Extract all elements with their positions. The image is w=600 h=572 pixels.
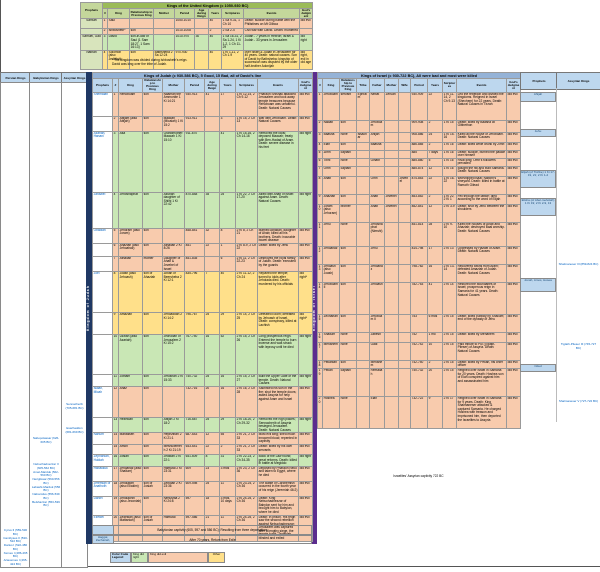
king-link-entry[interactable]: Nabopolassar (626-605 BC) — [30, 437, 62, 445]
cell-jdg: did evil — [299, 228, 313, 243]
cell-scr: 2 Ki 15 — [443, 342, 457, 360]
cell-wife — [399, 204, 411, 222]
judah-header-period: Period — [185, 79, 205, 93]
cell-rel: son — [143, 454, 163, 466]
cell-rel: son — [340, 282, 357, 314]
cell-period: 732-722 — [411, 397, 428, 429]
cell-events: Judah - 7 years in Hebron; Israel & Juda… — [244, 35, 300, 50]
top-header-rel: Relationship to Previous King — [130, 9, 154, 19]
cell-scr: 2 Ki 22-23, 2 Ch 34-35 — [236, 454, 258, 466]
legend-king-did-right: King did right — [131, 552, 148, 563]
cell-scr: 2 Ki 14, 2 Ch 25 — [236, 313, 258, 335]
cell-rel: son — [143, 243, 163, 256]
cell-rel: son — [143, 417, 163, 432]
cell-scr: 2 Ki 3-9 — [443, 204, 457, 222]
cell-wife — [399, 246, 411, 264]
cell-rel: none — [340, 222, 357, 246]
cell-scr: 2 Ki 15 — [443, 369, 457, 397]
cell-prophet[interactable]: Jeremiah of Anathoth — [93, 481, 113, 496]
prophet-cell[interactable]: Jonah, Amos, Hosea — [520, 278, 556, 292]
king-link-entry[interactable]: Esarhaddon (681-669 BC) — [62, 427, 87, 435]
cell-scr: 2 Ki 11, 2 Ch 22-23 — [236, 256, 258, 271]
table-row: Shemaiah1RehoboamsonNaamah the Ammonite … — [93, 92, 313, 116]
prophet-cell[interactable]: Jehu — [520, 129, 556, 137]
table-row: 7Omricaptain885-874121 Ki 16Bought the h… — [318, 166, 521, 176]
cell-period: 782-753 — [411, 282, 428, 314]
cell-scr: 1 Ki 16 — [443, 142, 457, 150]
cell-age — [205, 116, 220, 131]
table-row: Daniel19Jehoiachin (also Jeconiah)sonNeh… — [93, 496, 313, 515]
footnote: * The kingdom was divided during Ishbosh… — [112, 58, 312, 66]
cell-jdg: did evil — [507, 132, 521, 142]
cell-scr: 1 Ki 12-14, 2 Ch 9-12 — [236, 92, 258, 116]
cell-tribe — [357, 194, 370, 204]
cell-scr: 1 Ki 15-16 — [443, 132, 457, 142]
cell-jdg: did right — [299, 192, 313, 228]
cell-king: Asa — [119, 131, 143, 192]
cell-mother — [385, 166, 399, 176]
cell-father: Jeroboam II — [370, 314, 385, 332]
post-exile-prophets-cell[interactable]: Haggai, Zechariah, Malachi — [93, 536, 114, 543]
cell-jdg: did evil — [507, 150, 521, 158]
cell-king: Amaziah — [119, 313, 143, 335]
cell-mother: Meshullemeth 2 Ki 21:19 — [163, 444, 185, 454]
cell-jdg: did right — [299, 335, 313, 375]
cell-period: 609 — [185, 466, 205, 481]
prophet-cell[interactable]: Oded — [520, 364, 556, 372]
cell-tribe: Issachar — [357, 132, 370, 142]
babylonian-kings-column: Nabopolassar (626-605 BC)Nebuchadnezzar … — [29, 82, 63, 568]
cell-king: Jeroboam — [323, 92, 340, 120]
cell-age: 41 — [205, 92, 220, 116]
cell-period: 767-740 — [185, 335, 205, 375]
cell-mother: Zibiah of Beersheba 2 Ki 12:1 — [163, 272, 185, 313]
cell-king: Jotham — [119, 375, 143, 387]
cell-wife — [399, 264, 411, 282]
cell-period: 597 — [185, 496, 205, 515]
cell-wife — [399, 194, 411, 204]
cell-tribe — [357, 264, 370, 282]
cell-events: Death: killed by Pekah, his chief office… — [457, 360, 507, 368]
cell-king: Pekah — [323, 369, 340, 397]
cell-mother — [385, 397, 399, 429]
cell-rel: son — [143, 466, 163, 481]
cell-yrs: 22 — [428, 176, 443, 194]
cell-jdg: did evil — [507, 92, 521, 120]
cell-wife — [399, 342, 411, 360]
cell-jdg: did right — [299, 454, 313, 466]
cell-yrs: 5 — [428, 158, 443, 166]
cell-prophet[interactable]: Samuel, Gad — [81, 35, 103, 50]
color-code-legend: Color Code Legend: King did right King d… — [110, 552, 225, 563]
king-link-entry[interactable]: Shalmaneser III (859-824 BC) — [557, 263, 600, 267]
cell-mother: Jecholiah of Jerusalem 2 Ki 15:2 — [163, 335, 185, 375]
cell-period: 740-732 — [185, 375, 205, 387]
cell-king: Joash (also Jehoash) — [119, 272, 143, 313]
cell-yrs: 1 — [220, 243, 236, 256]
israel-kings-table: Kings of Israel (c 930-722 BC), All were… — [317, 72, 521, 429]
cell-rel: son — [143, 313, 163, 335]
cell-events: Rival king; Omri's followers prevailed — [457, 158, 507, 166]
cell-yrs: 29 — [220, 417, 236, 432]
cell-rel: son — [143, 433, 163, 445]
table-row: Azariah, Hanani3AsasonGrandmother: Maaca… — [93, 131, 313, 192]
cell-prophet[interactable]: Nahum — [93, 433, 113, 445]
cell-king: Jehoiakim (also Eliakim) — [119, 481, 143, 496]
israel-header-years: Years — [428, 79, 443, 93]
table-row: 11JothamsonJerushah 2 Ki 15:33740-732251… — [93, 375, 313, 387]
cell-period: 909-908 — [411, 120, 428, 132]
cell-prophet — [93, 417, 113, 432]
israel-header-scriptures: Scriptures — [443, 79, 457, 93]
cell-period: 874-853 — [411, 176, 428, 194]
cell-father: Jehoshaphat (Nimshi) — [370, 222, 385, 246]
cell-mother — [385, 314, 399, 332]
cell-mother — [154, 35, 175, 50]
cell-rel: son of Josiah — [143, 481, 163, 496]
cell-jdg: did evil — [507, 264, 521, 282]
cell-tribe — [357, 369, 370, 397]
persian-kings-column: Cyrus II (559-530 BC)Cambyses II (530-52… — [0, 82, 31, 568]
cell-age: 32 — [205, 228, 220, 243]
cell-events: Worshipped Baal; Naboth's vineyard. Deat… — [457, 176, 507, 194]
cell-period: 841-835 — [185, 256, 205, 271]
cell-king: Jehoash (also Joash) — [323, 264, 340, 282]
cell-jdg: did evil — [507, 222, 521, 246]
cell-scr: 2 Ki 17 — [443, 397, 457, 429]
table-row: 2NadabsonJeroboam909-90821 Ki 15Death: k… — [318, 120, 521, 132]
cell-yrs: 6 mos — [428, 314, 443, 332]
table-row: Jahaziel4JehoshaphatsonAzubah daughter o… — [93, 192, 313, 228]
cell-period: 716-687 — [185, 417, 205, 432]
cell-events: Death: suicide during battle with the Ph… — [244, 19, 300, 29]
cell-king: Hoshea — [323, 397, 340, 429]
cell-prophet[interactable]: Daniel — [93, 496, 113, 515]
cell-prophet — [93, 116, 113, 131]
cell-yrs: 28 — [428, 222, 443, 246]
cell-yrs: 2 — [428, 360, 443, 368]
cell-father: Ahab — [370, 194, 385, 204]
king-link-entry[interactable]: Sennacherib (705-681 BC) — [62, 403, 87, 411]
cell-age: 7 — [205, 272, 220, 313]
cell-scr: 2 Ki 15 — [443, 360, 457, 368]
cell-jdg: did evil — [299, 466, 313, 481]
cell-mother — [385, 132, 399, 142]
cell-father: Remaliah — [370, 369, 385, 397]
cell-age: 35 — [205, 192, 220, 228]
judah-header-events: Events — [258, 79, 299, 93]
cell-events: Death: suicide, burned the palace over h… — [457, 150, 507, 158]
cell-rel: son — [340, 264, 357, 282]
cell-king: Omri — [323, 166, 340, 176]
cell-wife — [399, 120, 411, 132]
top-header-prophets: Prophets — [81, 3, 103, 19]
table-row: 14Jeroboam IIsonJehoash782-753412 Ki 14R… — [318, 282, 521, 314]
table-row: 4ElahsonBaasha886-88521 Ki 16Death: kill… — [318, 142, 521, 150]
cell-mother: Naamah the Ammonite 1 Ki 14:21 — [163, 92, 185, 116]
cell-king: Menahem — [323, 342, 340, 360]
israel-header-rel: Relationship to Previous King — [340, 79, 357, 93]
cell-tribe — [357, 342, 370, 360]
cell-king: Jehoahaz — [323, 246, 340, 264]
cell-scr: 2 Ki 15 — [443, 314, 457, 332]
cell-events: Death: killed by his own servants — [258, 444, 299, 454]
top-header-years: Years — [209, 9, 222, 19]
cell-events: Oppressed by Hazael of Aram. Death: Natu… — [457, 246, 507, 264]
prophet-cell[interactable]: Elisha (of Abel-meholah) 1 Ki 19; 2 Ki 2… — [520, 198, 556, 216]
cell-prophet[interactable]: Obadiah — [93, 228, 113, 243]
cell-mother: Hephzibah 2 Ki 21:1 — [163, 433, 185, 445]
cell-king: Uzziah (also Azariah) — [119, 335, 143, 375]
cell-jdg: did evil — [507, 166, 521, 176]
cell-rel: none — [340, 342, 357, 360]
top-header-mother: Mother — [154, 9, 175, 19]
cell-king: Jehoahaz (also Shallum) — [119, 466, 143, 481]
israel-header-father: Father — [370, 79, 385, 93]
cell-father: Ahab — [370, 204, 385, 222]
cell-father — [370, 166, 385, 176]
cell-age: 22 — [205, 243, 220, 256]
cell-king: Jehoshaphat — [119, 192, 143, 228]
cell-jdg: did right — [300, 35, 313, 50]
cell-yrs: 40 — [220, 272, 236, 313]
cell-period: 753 — [411, 314, 428, 332]
cell-scr: 1 Sa 9-31, 1 Ch 10 — [222, 19, 244, 29]
cell-age: 22 — [205, 444, 220, 454]
king-link-entry[interactable]: Tiglath-Pileser III (745-727 BC) — [557, 343, 600, 351]
cell-mother: Abijah 2 Ki 18:2 — [163, 417, 185, 432]
table-row: Zephaniah, Huldah16JosiahsonJedidah 2 Ki… — [93, 454, 313, 466]
table-row: Samuel, Gad3Davidson-in-law of Saul (1 S… — [81, 35, 313, 50]
cell-scr: 2 Ki 15, 2 Ch 27 — [236, 375, 258, 387]
cell-wife — [399, 369, 411, 397]
cell-events: Removed the high places; Sennacherib of … — [258, 417, 299, 432]
table-row: 13HezekiahsonAbijah 2 Ki 18:2716-6872529… — [93, 417, 313, 432]
kings-timeline-sheet: Prophets Kings of the United Kingdom (c … — [0, 0, 600, 572]
cell-mother: Hamutal 2 Ki 23:31 — [163, 466, 185, 481]
cell-scr: 1 Ki 16-22 — [443, 176, 457, 194]
cell-yrs: 16 — [220, 375, 236, 387]
cell-mother: Azubah daughter of Shilhi 1 Ki 22:42 — [163, 192, 185, 228]
cell-period: 835-796 — [185, 272, 205, 313]
cell-scr: 1 Ki 15, 2 Ch 13 — [236, 116, 258, 131]
cell-yrs: 16 — [428, 264, 443, 282]
cell-events: Built the Upper Gate of the temple. Deat… — [258, 375, 299, 387]
cell-scr: 2 Ki 8-9, 2 Ch 22 — [236, 243, 258, 256]
cell-yrs: 41 — [428, 282, 443, 314]
cell-mother: Grandmother: Maacah 1 Ki 15:10 — [163, 131, 185, 192]
cell-scr: 2 Ki 11-12, 2 Ch 24 — [236, 272, 258, 313]
cell-jdg: did evil — [507, 194, 521, 204]
cell-mother — [385, 246, 399, 264]
cell-prophet[interactable]: Samuel — [81, 19, 103, 29]
table-row: 15ZechariahsonJeroboam II7536 mos2 Ki 15… — [318, 314, 521, 332]
cell-rel: captain — [340, 369, 357, 397]
cell-rel: mother — [143, 256, 163, 271]
cell-father: Ahijah — [370, 132, 385, 142]
cell-period: 609-598 — [185, 481, 205, 496]
cell-rel: son — [143, 335, 163, 375]
cell-rel: son — [340, 176, 357, 194]
cell-prophet[interactable]: Shemaiah — [93, 92, 113, 116]
cell-tribe — [357, 166, 370, 176]
cell-mother — [163, 228, 185, 243]
cell-wife — [399, 158, 411, 166]
cell-period: 1050-1010 — [175, 19, 195, 29]
cell-prophet[interactable]: Habakkuk — [93, 466, 113, 481]
cell-prophet[interactable]: Nathan — [81, 50, 103, 69]
cell-scr: 2 Ki 8, 2 Ch 21 — [236, 228, 258, 243]
cell-period: 885 — [411, 150, 428, 158]
cell-king: Shallum — [323, 332, 340, 342]
table-row: 12JehoahazsonJehu814-798172 Ki 13Oppress… — [318, 246, 521, 264]
cell-scr: 2 Ki 23, 2 Ch 36 — [236, 466, 258, 481]
cell-events: Long prosperous reign. Entered the templ… — [258, 335, 299, 375]
cell-yrs: 9 — [428, 397, 443, 429]
table-row: 18PekahiahsonMenahem742-74022 Ki 15Death… — [318, 360, 521, 368]
table-row: Nahum14ManassehsonHephzibah 2 Ki 21:1687… — [93, 433, 313, 445]
cell-period: 908-886 — [411, 132, 428, 142]
cell-king: Jehu — [323, 222, 340, 246]
cell-mother: Nehushta 2 Ki 24:8 — [163, 496, 185, 515]
cell-yrs: 12 — [428, 166, 443, 176]
cell-events: Death: King Nebuchadnezzar of Babylon se… — [258, 496, 299, 515]
king-link-entry[interactable]: Shalmaneser V (727-722 BC) — [557, 400, 600, 404]
cell-prophet[interactable]: Isaiah, Micah — [93, 386, 113, 417]
israel-header-tribe: Tribe — [357, 79, 370, 93]
cell-period: 930-913 — [185, 92, 205, 116]
cell-mother — [163, 386, 185, 417]
cell-jdg: did evil — [507, 332, 521, 342]
cell-king: Abijam (also Abijah) — [119, 116, 143, 131]
cell-age: 23 — [205, 466, 220, 481]
table-row: 1JeroboamservantEphraimNebatZeruah930-90… — [318, 92, 521, 120]
cell-events: War with Jeroboam. Death: Natural Causes — [258, 116, 299, 131]
cell-rel: son — [143, 131, 163, 192]
king-link-entry[interactable]: Cyrus II (559-530 BC)Cambyses II (530-52… — [1, 529, 30, 567]
band-prophet-cell — [93, 526, 114, 534]
cell-scr: 2 Ki 9-10 — [443, 222, 457, 246]
cell-prophet[interactable]: Jahaziel — [93, 192, 113, 228]
cell-events: Death: killed while drunk by Zimri — [457, 142, 507, 150]
cell-jdg: did evil — [299, 481, 313, 496]
cell-jdg: did evil — [507, 204, 521, 222]
israel-prophets-column: AhijahJehuElijah (of Tishbe) 1 Ki 17-19,… — [520, 88, 556, 422]
cell-prophet[interactable]: Azariah, Hanani — [93, 131, 113, 192]
cell-events: Death: killed by Baasha at Gibbethon — [457, 120, 507, 132]
cell-rel: son — [340, 120, 357, 132]
cell-mother: Zebidah 2 Ki 23:36 — [163, 481, 185, 496]
return-from-exile-text: After 70 years, Return from Exile — [114, 538, 311, 542]
cell-mother: Athaliah 2 Ki 8:26 — [163, 243, 185, 256]
cell-yrs: 8 — [220, 228, 236, 243]
judah-kings-table: Kings of Judah (c 930-586 BC), 5 Good, 1… — [92, 72, 313, 542]
table-row: 3BaashanoneIssacharAhijah908-886241 Ki 1… — [318, 132, 521, 142]
cell-king: Zimri — [323, 150, 340, 158]
cell-mother — [154, 19, 175, 29]
prophet-cell[interactable]: Elijah (of Tishbe) 1 Ki 17-19, 21; 2 Ki … — [520, 170, 556, 188]
cell-prophet — [93, 313, 113, 335]
israel-header-events: Events — [457, 79, 507, 93]
prophet-cell[interactable]: Ahijah — [520, 92, 556, 102]
cell-scr: 1 Ki 15-16, 2 Ch 14-16 — [236, 131, 258, 192]
cell-jdg: did evil — [507, 158, 521, 166]
cell-king: Josiah — [119, 454, 143, 466]
cell-yrs: 52 — [220, 335, 236, 375]
cell-events: Pharaoh Shishak attacked Jerusalem and t… — [258, 92, 299, 116]
cell-rel: son — [143, 496, 163, 515]
cell-events: Removed the idols; deposed Maacah; treat… — [258, 131, 299, 192]
judah-header-years: Years — [220, 79, 236, 93]
cell-events: Reigned over Israel in Samaria for 9 yea… — [457, 397, 507, 429]
cell-events: Destroyed the royal family of Judah. Dea… — [258, 256, 299, 271]
cell-rel: son of Ahaziah — [143, 272, 163, 313]
table-row: 11JehunoneJehoshaphat (Nimshi)841-814282… — [318, 222, 521, 246]
cell-mother — [385, 150, 399, 158]
legend-label: Color Code Legend: — [110, 552, 131, 563]
cell-events: Married Athaliah, daughter of Ahab; kill… — [258, 228, 299, 243]
cell-mother — [385, 332, 399, 342]
cell-yrs: 31 — [220, 454, 236, 466]
cell-rel: son — [340, 194, 357, 204]
table-row: 6Ahaziah (also Jehoahaz)sonAthaliah 2 Ki… — [93, 243, 313, 256]
cell-mother — [385, 222, 399, 246]
cell-period: 841-814 — [411, 222, 428, 246]
top-header-king: King — [108, 9, 130, 19]
cell-king: Baasha — [323, 132, 340, 142]
cell-rel: son — [143, 444, 163, 454]
top-header-period: Period — [175, 9, 195, 19]
cell-jdg: did evil — [507, 314, 521, 332]
cell-yrs: 3 — [220, 116, 236, 131]
cell-events: Paid tribute to Pul (Tiglath-Pileser) of… — [457, 342, 507, 360]
cell-events: Defeated Edom; defeated by Jehoash of Is… — [258, 313, 299, 335]
table-row: Jeremiah of Anathoth18Jehoiakim (also El… — [93, 481, 313, 496]
cell-jdg: did right — [299, 375, 313, 387]
cell-jdg: did right — [299, 131, 313, 192]
cell-tribe — [357, 314, 370, 332]
cell-wife — [399, 397, 411, 429]
cell-yrs: 1 mo — [428, 332, 443, 342]
cell-jdg: did evil — [507, 246, 521, 264]
cell-jdg: did evil — [299, 116, 313, 131]
cell-scr: 2 Ki 18-20, 2 Ch 29-32 — [236, 417, 258, 432]
cell-period: 1010-970 — [175, 35, 195, 50]
cell-father: Menahem — [370, 360, 385, 368]
cell-tribe — [357, 176, 370, 194]
cell-jdg: did right — [299, 417, 313, 432]
top-header-judgment: God's Judgment — [300, 9, 313, 19]
cell-wife — [399, 332, 411, 342]
cell-events: Death: shot by Jehu between the shoulder… — [457, 204, 507, 222]
cell-prophet[interactable]: Joel — [93, 272, 113, 313]
cell-mother — [385, 158, 399, 166]
israel-header-judgment: God's Judgment — [507, 79, 521, 93]
king-link-entry[interactable]: Nebuchadnezzar II (605-562 BC)Amel-Mardu… — [30, 463, 62, 508]
cell-mother — [385, 342, 399, 360]
cell-prophet[interactable]: Zephaniah, Huldah — [93, 454, 113, 466]
cell-period: 853-852 — [411, 194, 428, 204]
cell-jdg: did evil — [507, 282, 521, 314]
cell-king: Tibni — [323, 158, 340, 166]
cell-scr: 1 Ki 11-14, 2 Ch 9-13 — [443, 92, 457, 120]
cell-scr: 2 Ki 16, 2 Ch 28 — [236, 386, 258, 417]
cell-wife — [399, 222, 411, 246]
cell-events: Led the rebellion and divided the kingdo… — [457, 92, 507, 120]
cell-period: 732-716 — [185, 386, 205, 417]
cell-father: Elah — [370, 397, 385, 429]
cell-events: Allied with Ahab of Israel against Aram.… — [258, 192, 299, 228]
